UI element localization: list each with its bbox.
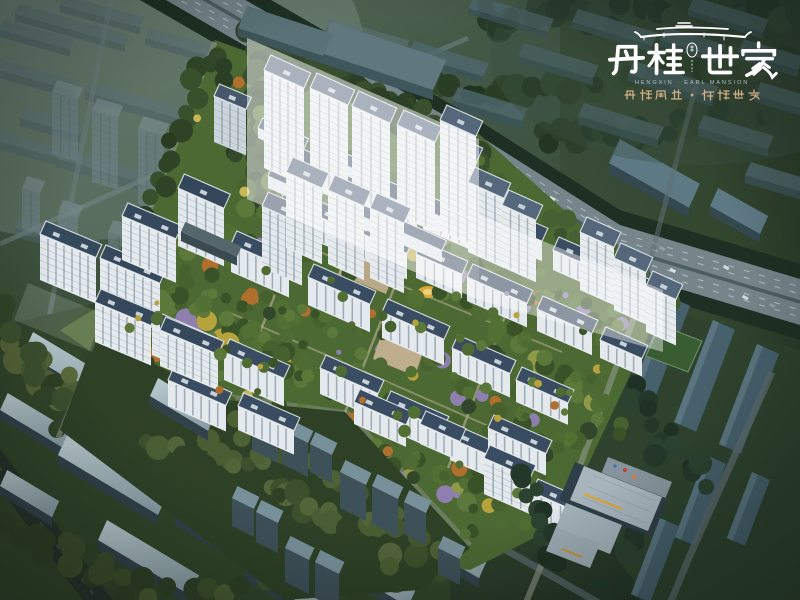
svg-text:HENGXIN · EARL MANSION: HENGXIN · EARL MANSION (635, 80, 749, 86)
